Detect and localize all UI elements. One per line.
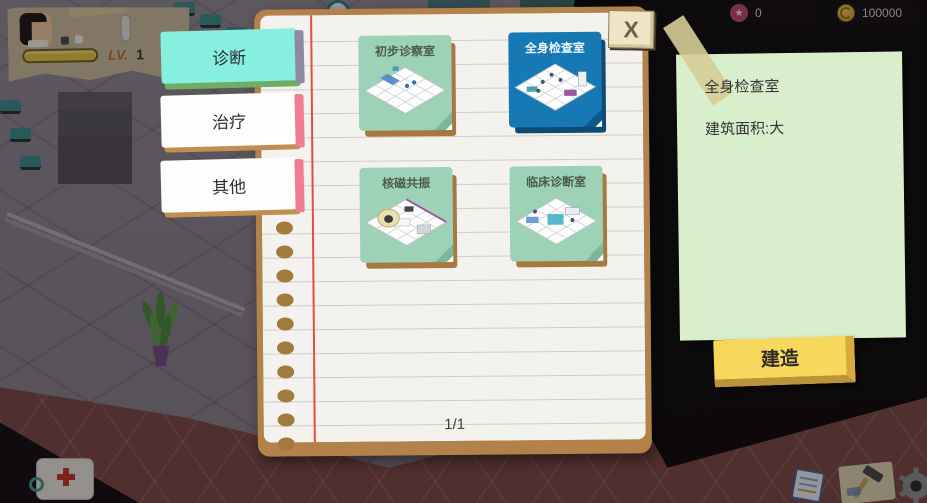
build-menu-panel: 1/1 初步诊察室 全身检查室 bbox=[254, 6, 652, 456]
room-card-full-body-exam[interactable]: 全身检查室 bbox=[508, 32, 602, 128]
room-card-preliminary-exam[interactable]: 初步诊察室 bbox=[358, 35, 452, 131]
tab-diagnosis[interactable]: 诊断 bbox=[160, 28, 297, 84]
tab-treatment[interactable]: 治疗 bbox=[160, 92, 297, 148]
page-indicator: 1/1 bbox=[264, 414, 646, 434]
close-icon: X bbox=[623, 16, 639, 43]
room-detail-panel: 全身检查室 建筑面积:大 bbox=[676, 51, 906, 340]
tab-other[interactable]: 其他 bbox=[160, 157, 297, 213]
room-detail-name: 全身检查室 bbox=[704, 75, 779, 97]
tab-label: 其他 bbox=[212, 172, 247, 198]
card-fold-corner bbox=[585, 243, 603, 261]
game-screen: LV. 1 ★ 0 100000 1/1 初步诊察室 bbox=[0, 0, 927, 503]
tab-label: 治疗 bbox=[212, 107, 247, 133]
build-button-label: 建造 bbox=[760, 344, 799, 372]
card-fold-corner bbox=[434, 112, 452, 130]
room-detail-area: 建筑面积:大 bbox=[705, 117, 784, 139]
card-fold-corner bbox=[584, 109, 602, 127]
room-card-mri[interactable]: 核磁共振 bbox=[359, 167, 453, 263]
build-button[interactable]: 建造 bbox=[713, 336, 856, 388]
close-button[interactable]: X bbox=[608, 10, 655, 49]
tab-label: 诊断 bbox=[212, 43, 247, 69]
card-fold-corner bbox=[435, 244, 453, 262]
room-card-clinical-diagnosis[interactable]: 临床诊断室 bbox=[509, 166, 603, 262]
